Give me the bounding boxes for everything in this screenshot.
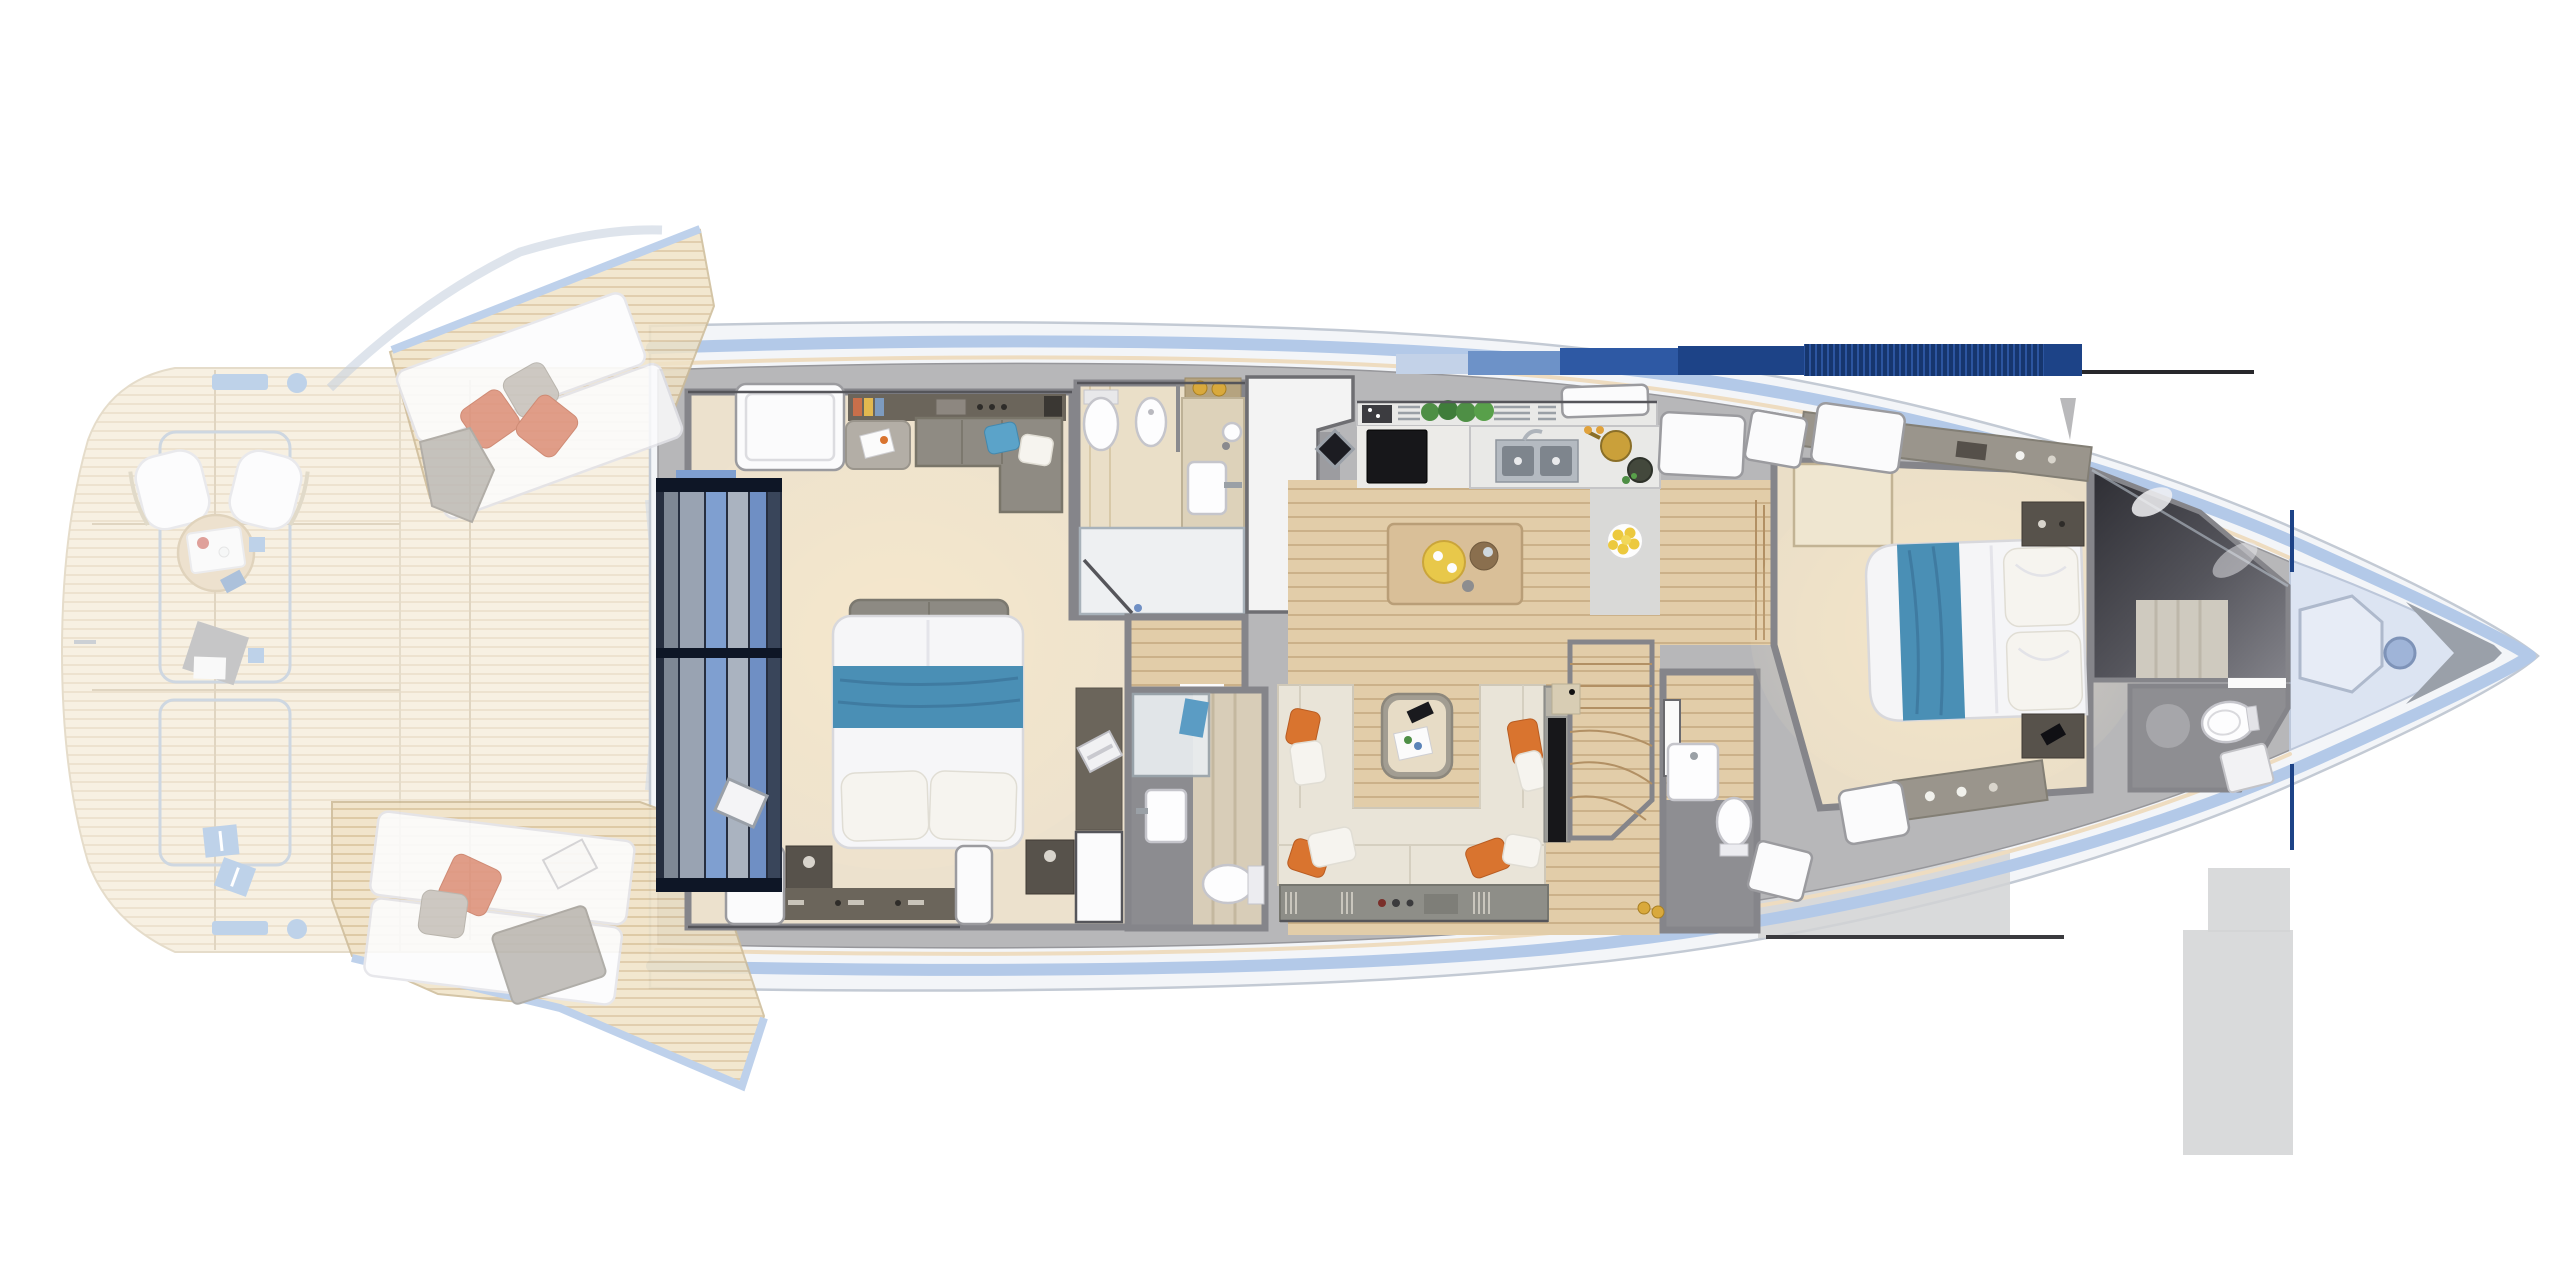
cleat-strip-top <box>212 374 268 390</box>
corner-cabinet <box>1552 684 1580 714</box>
vip-bed-runner <box>1897 543 1965 721</box>
blue-box-b <box>248 648 264 663</box>
bollard-top <box>287 373 307 393</box>
sofa-base-cabinet <box>1280 885 1548 921</box>
windlass <box>2385 638 2415 668</box>
toilet <box>1084 390 1118 450</box>
white-pillow-a <box>1289 740 1327 786</box>
master-bathroom <box>1077 378 1245 615</box>
vip-nightstand-top <box>2022 502 2084 546</box>
bulwark-fold-line-b <box>2290 764 2294 850</box>
bollard-bottom <box>287 919 307 939</box>
head-toilet <box>1717 798 1751 856</box>
vip-pillow-bottom <box>2006 630 2083 711</box>
master-bed <box>833 616 1023 848</box>
antenna-fin <box>2060 398 2076 440</box>
aft-glass-doors <box>656 470 782 892</box>
deck-hatch-fwd-b <box>1810 402 1905 474</box>
bulwark-fold-line-a <box>2290 510 2294 572</box>
white-pillow <box>1018 434 1054 467</box>
galley-tv <box>1367 430 1427 483</box>
bidet <box>1136 398 1166 446</box>
dresser <box>1794 464 1892 546</box>
trim-tab-mark <box>74 640 96 644</box>
vip-bed <box>1865 538 2087 721</box>
cream-pillow-d <box>1502 833 1543 869</box>
deck-hatch-fwd-c <box>1838 781 1910 845</box>
render-shadow-c <box>2183 930 2293 1155</box>
amber-bottle-d <box>1652 906 1664 918</box>
datum-line-bottom <box>1766 935 2064 939</box>
side-table <box>846 421 910 469</box>
cabin-door <box>1076 832 1122 922</box>
gray-pillow <box>417 889 469 939</box>
blue-box-a <box>249 537 265 552</box>
guest-shower <box>1133 694 1209 776</box>
tiled-wall <box>2136 600 2228 678</box>
guest-basin <box>1146 790 1186 842</box>
nightstand-right <box>1026 840 1074 894</box>
vip-pillow-top <box>2003 546 2080 627</box>
bed-pillow-left <box>841 771 929 842</box>
fender-box-a <box>203 824 240 857</box>
hull-window-right <box>956 846 992 924</box>
vanity <box>1182 398 1244 528</box>
floorplan-svg: Motor yacht deck plan — top-down interio… <box>0 0 2560 1280</box>
bed-runner <box>833 666 1023 728</box>
bath-door-gap <box>2228 678 2286 688</box>
amber-bottle-c <box>1638 902 1650 914</box>
blue-pillow <box>983 421 1020 455</box>
cleat-strip-bottom <box>212 921 268 935</box>
guest-toilet <box>1203 865 1264 904</box>
render-shadow-b <box>2208 868 2290 932</box>
hallway <box>1128 617 1245 694</box>
aft-lockers <box>756 888 960 920</box>
lemon-plate <box>1607 523 1643 559</box>
skylight-hatch <box>736 384 844 470</box>
bow-hatch <box>2300 596 2382 692</box>
charger-plate <box>1470 542 1498 570</box>
serving-tray <box>1423 541 1465 583</box>
deck-hatch-fwd-a <box>1744 410 1808 469</box>
datum-line-top <box>2082 370 2254 374</box>
dining-table <box>1388 524 1522 604</box>
stairs-down <box>1570 642 1652 838</box>
shower <box>1080 528 1244 614</box>
yacht-floorplan: Motor yacht deck plan — top-down interio… <box>0 0 2560 1280</box>
deck-hatch-galley-b <box>1658 412 1745 478</box>
bed-pillow-right <box>929 771 1017 842</box>
deck-table <box>178 515 254 593</box>
coffee-table <box>1382 694 1452 778</box>
guest-bathroom <box>1128 690 1265 928</box>
